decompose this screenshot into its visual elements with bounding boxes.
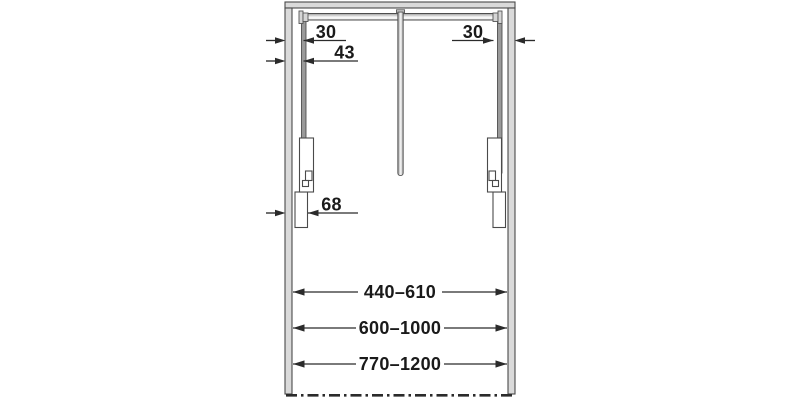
dim-label-range-medium: 600–1000 xyxy=(359,318,442,338)
range-large-left-arrow-icon xyxy=(293,360,305,367)
left-end-cap xyxy=(299,11,303,24)
left-bracket-notch xyxy=(303,181,309,187)
left-ref-arrow-icon-3 xyxy=(275,210,286,217)
pull-rod xyxy=(398,12,403,176)
left-corner-fitting xyxy=(303,13,308,22)
dim-arrow-68-icon xyxy=(308,210,319,217)
dim-label-range-small: 440–610 xyxy=(364,282,436,302)
range-medium-right-arrow-icon xyxy=(496,324,508,331)
range-small-right-arrow-icon xyxy=(496,288,508,295)
dim-label-range-large: 770–1200 xyxy=(359,354,442,374)
dim-label-30-left: 30 xyxy=(316,22,337,42)
left-lower-slide-tube xyxy=(295,192,308,228)
cabinet-left-side-panel xyxy=(285,8,292,394)
right-ref-arrow-icon xyxy=(515,37,526,44)
dim-arrow-30-right-icon xyxy=(483,37,494,44)
diagram-canvas: 30 43 30 68 440–610 600–1000 770–1200 xyxy=(0,0,800,400)
dim-label-30-right: 30 xyxy=(463,22,484,42)
range-large-right-arrow-icon xyxy=(496,360,508,367)
right-bracket-notch xyxy=(493,181,499,187)
left-bracket-foot xyxy=(306,171,313,181)
right-end-cap xyxy=(498,11,502,24)
width-range-dimensions: 440–610 600–1000 770–1200 xyxy=(293,282,507,375)
right-lower-slide-tube xyxy=(493,192,506,228)
dim-label-43: 43 xyxy=(334,43,355,63)
cabinet-top-panel xyxy=(285,2,515,8)
left-ref-arrow-icon-2 xyxy=(275,58,286,65)
cabinet-right-side-panel xyxy=(508,8,515,394)
range-small-left-arrow-icon xyxy=(293,288,305,295)
left-ref-arrow-icon-1 xyxy=(275,37,286,44)
right-bracket-foot xyxy=(489,171,496,181)
dim-label-68: 68 xyxy=(321,195,342,215)
range-medium-left-arrow-icon xyxy=(293,324,305,331)
wardrobe-lift-dimension-diagram: 30 43 30 68 440–610 600–1000 770–1200 xyxy=(0,0,800,400)
right-corner-fitting xyxy=(493,13,498,22)
